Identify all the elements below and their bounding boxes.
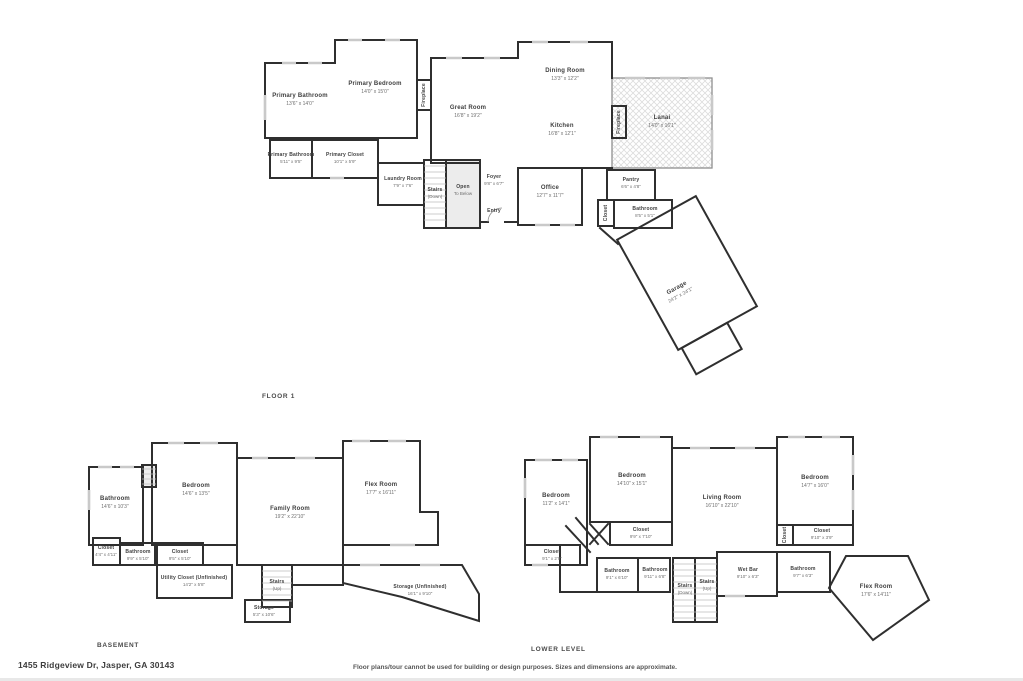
fireplace-left-box [417,80,431,110]
basement-windows [89,441,440,565]
open-to-below-area [446,160,480,228]
floor-plan-sheet: Primary Bathroom 13'6" x 14'0" Primary B… [0,0,1023,681]
disclaimer-text: Floor plans/tour cannot be used for buil… [353,664,677,671]
lower-windows [525,437,853,596]
caption-basement: BASEMENT [97,642,139,649]
basement-stair-treads [142,469,292,601]
floor1-walls [265,40,771,376]
entry-door-arc [488,208,502,222]
caption-lower-level: LOWER LEVEL [531,646,586,653]
property-address: 1455 Ridgeview Dr, Jasper, GA 30143 [18,660,174,670]
lower-walls [525,437,929,640]
caption-floor1: FLOOR 1 [262,393,295,400]
floor1-stair-treads [424,166,446,220]
floorplan-drawing [0,0,1023,681]
garage-walls [617,196,771,376]
